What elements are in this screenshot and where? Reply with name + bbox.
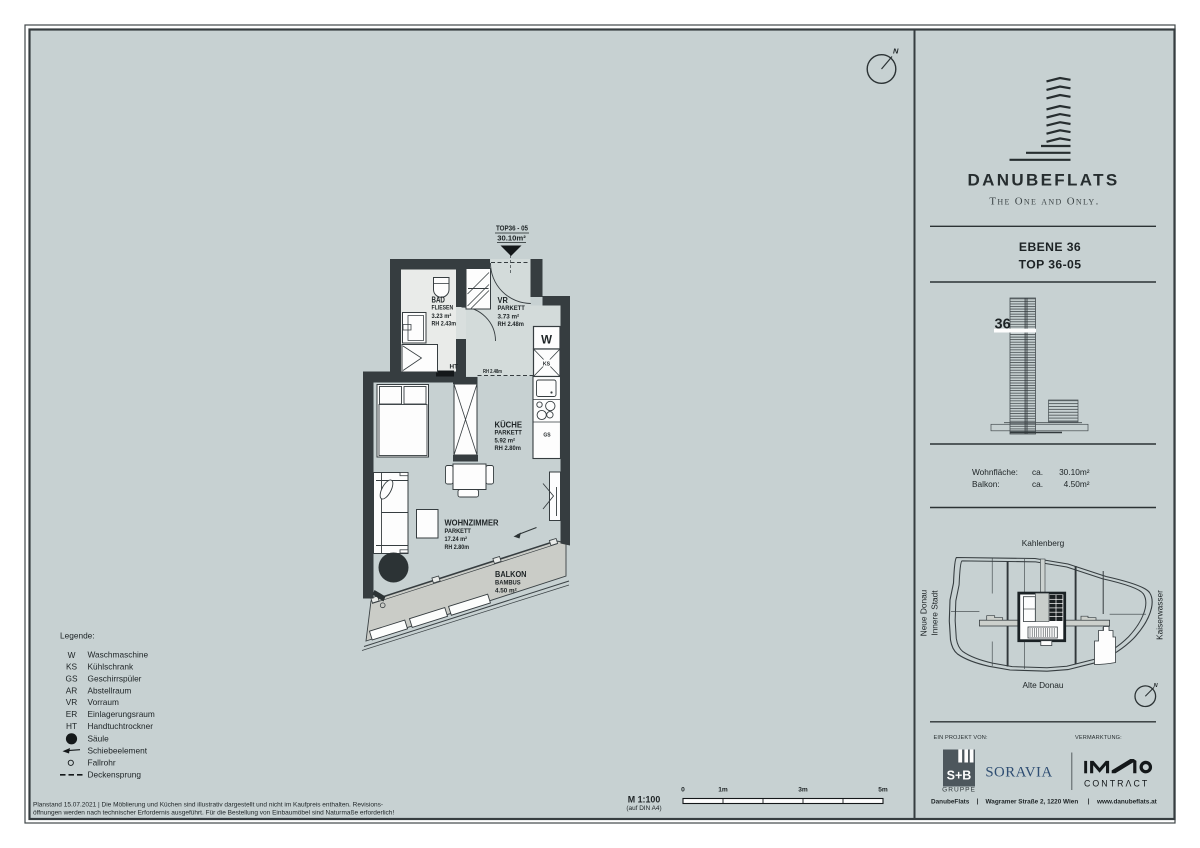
svg-text:BAD: BAD: [432, 296, 446, 305]
svg-text:RH 2.80m: RH 2.80m: [495, 445, 522, 452]
svg-text:The One and Only.: The One and Only.: [989, 196, 1099, 208]
svg-text:5.92 m²: 5.92 m²: [495, 438, 516, 445]
svg-text:Kaiserwasser: Kaiserwasser: [1155, 590, 1165, 640]
svg-text:VR: VR: [66, 697, 78, 707]
svg-text:Handtuchtrockner: Handtuchtrockner: [88, 721, 154, 731]
svg-text:EBENE 36: EBENE 36: [1019, 240, 1081, 254]
svg-text:30.10m²: 30.10m²: [1059, 467, 1090, 477]
svg-text:30.10m²: 30.10m²: [497, 234, 526, 243]
svg-text:KÜCHE: KÜCHE: [495, 421, 523, 430]
svg-text:PARKETT: PARKETT: [445, 528, 472, 535]
svg-text:4.50m²: 4.50m²: [1064, 479, 1090, 489]
svg-text:EIN PROJEKT VON:: EIN PROJEKT VON:: [934, 735, 989, 741]
svg-text:0: 0: [681, 787, 685, 794]
svg-text:Alte Donau: Alte Donau: [1022, 680, 1063, 690]
svg-text:|: |: [977, 798, 979, 805]
svg-text:Kahlenberg: Kahlenberg: [1022, 538, 1065, 548]
svg-text:N: N: [893, 47, 899, 56]
svg-text:3m: 3m: [798, 787, 808, 794]
svg-text:W: W: [68, 650, 76, 660]
svg-text:PARKETT: PARKETT: [498, 305, 525, 312]
svg-text:TOP36 - 05: TOP36 - 05: [496, 224, 528, 233]
svg-text:BAMBUS: BAMBUS: [495, 580, 521, 587]
svg-text:4.50 m²: 4.50 m²: [495, 588, 517, 595]
svg-text:GRUPPE: GRUPPE: [942, 787, 976, 794]
svg-text:Kühlschrank: Kühlschrank: [88, 662, 135, 672]
svg-text:Deckensprung: Deckensprung: [88, 770, 142, 780]
svg-text:|: |: [1088, 798, 1090, 805]
svg-text:RH 2.43m: RH 2.43m: [432, 321, 457, 328]
svg-text:36: 36: [995, 316, 1011, 332]
svg-text:Wohnfläche:: Wohnfläche:: [972, 467, 1018, 477]
svg-text:RH 2.48m: RH 2.48m: [498, 321, 525, 328]
svg-text:HT: HT: [450, 363, 459, 370]
svg-text:FLIESEN: FLIESEN: [432, 305, 454, 312]
svg-text:(auf DIN A4): (auf DIN A4): [626, 805, 661, 812]
svg-text:ca.: ca.: [1032, 467, 1043, 477]
svg-text:Einlagerungsraum: Einlagerungsraum: [88, 709, 155, 719]
svg-text:öffnungen werden nach technisc: öffnungen werden nach technischer Erford…: [33, 810, 394, 817]
svg-text:TOP 36-05: TOP 36-05: [1019, 258, 1082, 272]
svg-text:Säule: Säule: [88, 734, 110, 744]
svg-text:KS: KS: [543, 362, 551, 368]
svg-text:Balkon:: Balkon:: [972, 479, 1000, 489]
svg-text:Neue Donau: Neue Donau: [919, 589, 929, 636]
svg-text:3.23 m²: 3.23 m²: [432, 313, 452, 320]
svg-text:CONTRΛCT: CONTRΛCT: [1084, 779, 1149, 789]
svg-text:AR: AR: [66, 686, 78, 696]
svg-text:GS: GS: [543, 433, 551, 439]
svg-text:ca.: ca.: [1032, 479, 1043, 489]
svg-text:Innere Stadt: Innere Stadt: [930, 590, 940, 636]
svg-text:S+B: S+B: [947, 769, 972, 783]
svg-text:KS: KS: [66, 662, 78, 672]
svg-text:RH 2.80m: RH 2.80m: [445, 544, 470, 551]
svg-text:Fallrohr: Fallrohr: [88, 758, 116, 768]
svg-text:Abstellraum: Abstellraum: [88, 686, 132, 696]
svg-text:SORAVIA: SORAVIA: [985, 765, 1052, 781]
svg-text:M 1:100: M 1:100: [628, 795, 661, 805]
svg-text:RH 2.48m: RH 2.48m: [483, 369, 502, 375]
svg-text:Waschmaschine: Waschmaschine: [88, 650, 149, 660]
svg-text:ER: ER: [66, 709, 78, 719]
svg-text:Vorraum: Vorraum: [88, 697, 119, 707]
svg-text:Planstand 15.07.2021 | Die Mö: Planstand 15.07.2021 | Die Möblierung un…: [33, 802, 383, 809]
svg-text:5m: 5m: [878, 787, 888, 794]
svg-text:Schiebeelement: Schiebeelement: [88, 746, 148, 756]
svg-text:BALKON: BALKON: [495, 570, 527, 579]
svg-text:VR: VR: [498, 296, 508, 305]
svg-text:Legende:: Legende:: [60, 631, 95, 641]
svg-text:WOHNZIMMER: WOHNZIMMER: [445, 519, 499, 528]
svg-text:1m: 1m: [718, 787, 728, 794]
svg-text:3.73 m²: 3.73 m²: [498, 314, 520, 321]
svg-text:DANUBEFLATS: DANUBEFLATS: [967, 171, 1119, 190]
svg-text:17.24 m²: 17.24 m²: [445, 536, 468, 543]
svg-text:HT: HT: [66, 721, 77, 731]
svg-text:PARKETT: PARKETT: [495, 430, 522, 437]
svg-text:W: W: [541, 335, 552, 347]
svg-text:www.danubeflats.at: www.danubeflats.at: [1096, 799, 1158, 806]
svg-text:DanubeFlats: DanubeFlats: [931, 799, 970, 806]
svg-text:Wagramer Straße 2, 1220 Wien: Wagramer Straße 2, 1220 Wien: [986, 799, 1079, 806]
svg-text:GS: GS: [66, 674, 78, 684]
svg-text:Geschirrspüler: Geschirrspüler: [88, 674, 142, 684]
svg-text:VERMARKTUNG:: VERMARKTUNG:: [1075, 735, 1122, 741]
